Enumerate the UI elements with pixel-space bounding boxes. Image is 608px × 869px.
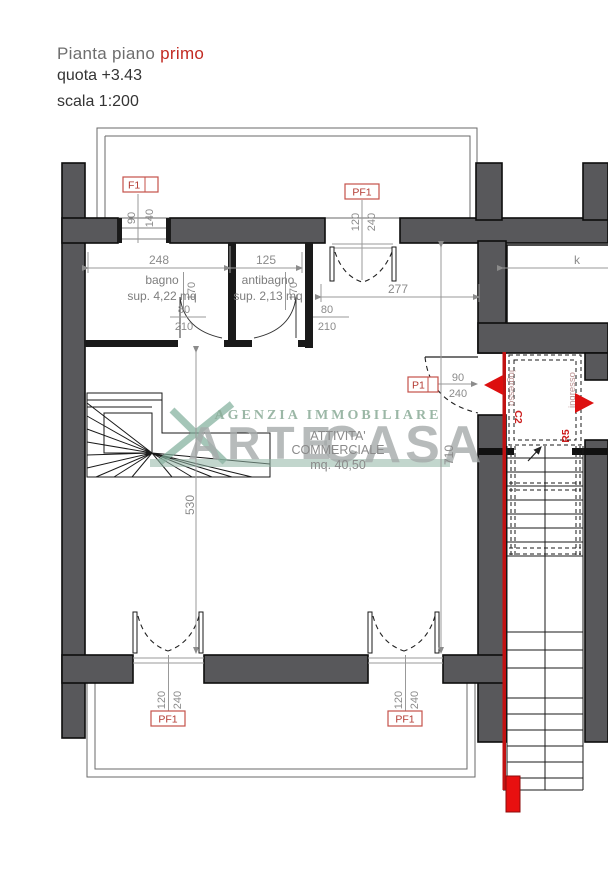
title-block: Pianta piano primo quota +3.43 scala 1:2… [57, 44, 204, 111]
antibagno-area: sup. 2,13 mq [233, 289, 302, 303]
wall-north-a [62, 218, 118, 243]
dim-room-height-right: 710 [442, 445, 456, 465]
landing-wall-stubs [478, 448, 608, 455]
stair-red-marker [506, 776, 520, 812]
svg-text:80: 80 [178, 304, 190, 316]
wall-north-b [170, 218, 325, 243]
svg-text:240: 240 [449, 388, 467, 400]
plan-title: Pianta piano primo [57, 44, 204, 64]
entrance-arrow-right [575, 393, 594, 413]
commercial-line3: mq. 40,50 [310, 458, 366, 472]
neighbor-room [507, 245, 608, 323]
top-terrace-outline [97, 128, 477, 218]
svg-text:PF1: PF1 [158, 714, 177, 726]
wall-west [62, 163, 85, 738]
dim-antibagno-width: 125 [256, 253, 276, 267]
svg-text:240: 240 [409, 691, 421, 709]
entrance-arrow-left [484, 375, 503, 395]
svg-text:PF1: PF1 [352, 187, 371, 199]
stair-red-line [503, 352, 507, 790]
svg-text:120: 120 [156, 691, 168, 709]
floor-plan-page: Pianta piano primo quota +3.43 scala 1:2… [0, 0, 608, 869]
dim-room-height-left: 530 [183, 495, 197, 515]
unit-c2: C2 [512, 410, 524, 424]
door-pf1-top [330, 244, 396, 282]
plan-quota: quota +3.43 [57, 67, 204, 85]
label-f1: F1 90 140 [123, 177, 158, 227]
floor-plan-drawing: AGENZIA IMMOBILIARE ARTE CASA 248 125 27… [0, 0, 608, 869]
bagno-area: sup. 4,22 mq [127, 289, 196, 303]
antibagno-door-swing [254, 297, 296, 338]
plan-title-floor: primo [160, 44, 204, 63]
wall-shaft-right-upper [585, 353, 608, 380]
svg-text:210: 210 [175, 321, 193, 333]
antibagno-name: antibagno [242, 273, 295, 287]
label-bagno-door: 80 210 [175, 304, 193, 333]
unit-r5: R5 [560, 429, 572, 443]
wall-south-a [62, 655, 133, 683]
plan-title-gray: Pianta piano [57, 44, 155, 63]
svg-text:P1: P1 [412, 380, 425, 392]
svg-text:90: 90 [126, 212, 138, 224]
label-p1: P1 90 240 [408, 372, 467, 400]
wall-shaft-right-lower [585, 440, 608, 742]
svg-text:90: 90 [452, 372, 464, 384]
svg-text:120: 120 [393, 691, 405, 709]
stair-direction-arrow [528, 447, 541, 461]
svg-text:120: 120 [350, 213, 362, 231]
partition-south-b [224, 340, 252, 347]
plan-scale: scala 1:200 [57, 93, 204, 111]
partition-antibagno-east [305, 243, 313, 348]
wall-pillar-2 [583, 163, 608, 220]
wall-north-c [400, 218, 608, 243]
svg-text:PF1: PF1 [395, 714, 414, 726]
commercial-line1: ATTIVITA' [310, 429, 365, 443]
wall-pillar-1 [476, 163, 502, 220]
commercial-line2: COMMERCIALE [291, 443, 384, 457]
partition-south-c [298, 340, 313, 347]
svg-text:140: 140 [144, 209, 156, 227]
dim-hall-width: 277 [388, 282, 408, 296]
svg-text:F1: F1 [128, 180, 140, 192]
bagno-name: bagno [145, 273, 179, 287]
ingresso-left: ingresso [506, 370, 517, 406]
svg-text:210: 210 [318, 321, 336, 333]
dim-k: k [574, 253, 581, 267]
dim-bagno-width: 248 [149, 253, 169, 267]
label-antibagno-door: 80 210 [318, 304, 336, 333]
partition-south-a [85, 340, 178, 347]
wall-south-c [443, 655, 506, 683]
svg-text:240: 240 [172, 691, 184, 709]
wall-south-b [204, 655, 368, 683]
svg-text:80: 80 [321, 304, 333, 316]
wall-band-right [478, 323, 608, 353]
svg-text:240: 240 [366, 213, 378, 231]
